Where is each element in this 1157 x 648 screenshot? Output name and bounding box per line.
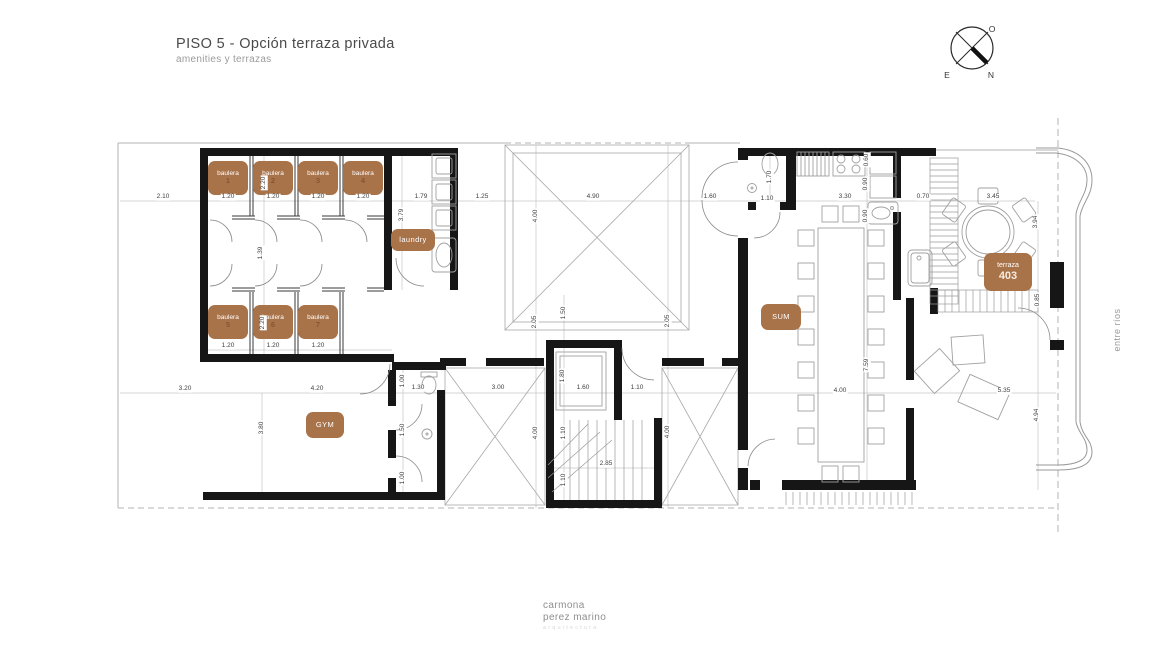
room-label: laundry: [399, 236, 426, 245]
dimension-label: 2.85: [599, 461, 614, 468]
dimension-label: 1.39: [258, 246, 265, 261]
dimension-label: 0.85: [1035, 293, 1042, 308]
room-number: 4: [361, 177, 365, 186]
dimension-label: 1.20: [266, 194, 281, 201]
dimension-label: 1.10: [760, 196, 775, 203]
dimension-label: 1.00: [400, 374, 407, 389]
page: baulera1baulera2baulera3baulera4laundryb…: [0, 0, 1157, 648]
room-number: 5: [226, 321, 230, 330]
dimension-label: 2.05: [665, 314, 672, 329]
room-badge-gym: GYM: [306, 412, 344, 438]
room-number: 2: [271, 177, 275, 186]
dimension-label: 3.20: [178, 386, 193, 393]
dimension-label: 7.59: [864, 358, 871, 373]
dimension-label: 1.20: [266, 343, 281, 350]
page-title: PISO 5 - Opción terraza privada: [176, 36, 395, 52]
dimension-label: 1.10: [630, 385, 645, 392]
dimension-label: 3.00: [491, 385, 506, 392]
dimension-label: 2.20: [260, 316, 267, 331]
compass-n-label: N: [988, 70, 994, 80]
dimension-label: 1.25: [475, 194, 490, 201]
dimension-label: 4.00: [833, 388, 848, 395]
dimension-label: 0.70: [916, 194, 931, 201]
room-label: SUM: [772, 313, 790, 322]
dimension-label: 3.30: [838, 194, 853, 201]
room-label: terraza: [997, 262, 1019, 270]
room-label: GYM: [316, 421, 334, 430]
dimension-label: 4.00: [533, 426, 540, 441]
room-number: 1: [226, 177, 230, 186]
dimension-label: 1.30: [411, 385, 426, 392]
dimension-label: 3.94: [1033, 215, 1040, 230]
dimension-label: 1.20: [221, 194, 236, 201]
compass-rose-icon: O E N: [935, 8, 1015, 88]
street-label: entre ríos: [1112, 308, 1122, 351]
dimension-label: 1.60: [576, 385, 591, 392]
dimension-label: 0.90: [863, 209, 870, 224]
dimension-label: 2.20: [261, 176, 268, 191]
dimension-label: 1.79: [414, 194, 429, 201]
dimension-label: 4.00: [665, 425, 672, 440]
signature-line-3: arquitectura: [543, 623, 606, 635]
plan-overlay: baulera1baulera2baulera3baulera4laundryb…: [0, 0, 1157, 648]
dimension-label: 1.10: [561, 426, 568, 441]
dimension-label: 1.10: [561, 473, 568, 488]
title-block: PISO 5 - Opción terraza privada amenitie…: [176, 36, 395, 65]
dimension-label: 1.70: [767, 170, 774, 185]
dimension-label: 4.90: [586, 194, 601, 201]
dimension-label: 3.45: [986, 194, 1001, 201]
room-badge-baulera3: baulera3: [298, 161, 338, 195]
studio-signature: carmona perez marino arquitectura: [543, 600, 606, 635]
dimension-label: 1.20: [356, 194, 371, 201]
dimension-label: 5.35: [997, 388, 1012, 395]
dimension-label: 1.00: [400, 471, 407, 486]
room-number: 3: [316, 177, 320, 186]
compass-o-label: O: [989, 24, 996, 34]
dimension-label: 2.05: [532, 315, 539, 330]
dimension-label: 4.00: [533, 209, 540, 224]
room-badge-baulera4: baulera4: [343, 161, 383, 195]
dimension-label: 1.60: [703, 194, 718, 201]
signature-line-2: perez marino: [543, 612, 606, 624]
room-badge-baulera7: baulera7: [298, 305, 338, 339]
compass-e-label: E: [944, 70, 950, 80]
dimension-label: 3.80: [259, 421, 266, 436]
room-number: 403: [999, 270, 1017, 283]
room-badge-laundry: laundry: [391, 229, 435, 251]
room-badge-baulera5: baulera5: [208, 305, 248, 339]
room-badge-terraza403: terraza403: [984, 253, 1032, 291]
dimension-label: 1.50: [400, 423, 407, 438]
signature-line-1: carmona: [543, 600, 606, 612]
dimension-label: 3.79: [399, 208, 406, 223]
dimension-label: 0.90: [863, 177, 870, 192]
dimension-label: 1.20: [311, 194, 326, 201]
dimension-label: 1.20: [311, 343, 326, 350]
dimension-label: 1.50: [561, 306, 568, 321]
dimension-label: 2.10: [156, 194, 171, 201]
room-badge-sum: SUM: [761, 304, 801, 330]
dimension-label: 1.20: [221, 343, 236, 350]
page-subtitle: amenities y terrazas: [176, 54, 395, 65]
room-number: 6: [271, 321, 275, 330]
dimension-label: 0.60: [864, 153, 871, 168]
room-badge-baulera1: baulera1: [208, 161, 248, 195]
room-number: 7: [316, 321, 320, 330]
dimension-label: 1.80: [560, 369, 567, 384]
dimension-label: 4.94: [1034, 408, 1041, 423]
dimension-label: 4.20: [310, 386, 325, 393]
